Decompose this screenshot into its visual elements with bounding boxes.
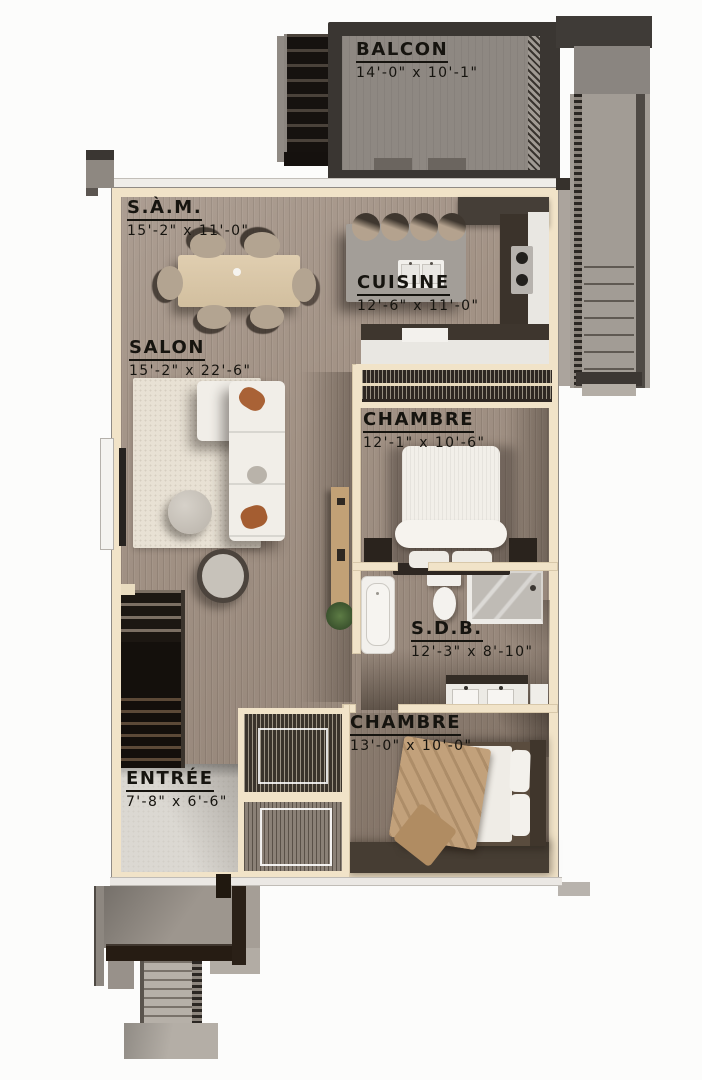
balcony-step-notch [428,158,466,170]
room-label-cuisine: CUISINE 12'-6" x 11'-0" [357,273,479,314]
dining-chair [197,305,231,329]
bottom-sill [110,877,562,886]
bar-stool [438,213,466,241]
entry-closet-upper [238,708,348,798]
swivel-chair [197,549,249,603]
dining-table [178,255,300,307]
stair-handrail [181,590,185,768]
side-stair-rail-right [636,94,645,388]
dining-chair [250,305,284,329]
left-window [100,438,114,550]
room-name: BALCON [356,40,448,63]
dishwasher [402,328,448,342]
bed2-pillow [510,794,530,836]
dining-chair [292,268,316,302]
cooktop-burner [516,252,528,264]
bottom-sill-step [558,882,590,896]
closet-door-outline [260,808,332,866]
porch-railing-horizontal [106,944,244,961]
room-name: SALON [129,338,205,361]
stairwell-upper-treads [121,590,184,642]
bed2-pillow [509,750,530,793]
exterior-stairs [140,961,192,1025]
room-dims: 15'-2" x 11'-0" [127,224,249,239]
shower [467,571,543,624]
dining-chair [157,266,183,300]
room-label-chambre2: CHAMBRE 13'-0" x 10'-0" [350,713,472,754]
bathtub-drain [376,592,379,595]
stair-newel-post [121,584,135,595]
room-label-entree: ENTRÉE 7'-8" x 6'-6" [126,769,228,810]
room-dims: 13'-0" x 10'-0" [350,739,472,754]
potted-plant [326,602,354,630]
roof-block-gray [574,46,650,96]
balcony-rail-hatch [528,36,540,170]
counter-bottom-white [361,340,549,364]
room-dims: 12'-3" x 8'-10" [411,645,533,660]
tv-panel [119,448,126,546]
porch-left-strip [94,886,104,986]
stairwell-lower-treads [121,698,184,768]
room-name: CHAMBRE [350,713,461,736]
entry-closet-lower [238,796,348,877]
front-door [216,874,231,898]
room-label-salon: SALON 15'-2" x 22'-6" [129,338,251,379]
room-dims: 12'-6" x 11'-0" [357,299,479,314]
room-name: S.D.B. [411,619,483,642]
wardrobe-clothes-row [362,370,552,383]
room-dims: 15'-2" x 22'-6" [129,364,251,379]
top-window-sill [112,178,558,188]
room-dims: 12'-1" x 10'-6" [363,436,485,451]
wardrobe-clothes-row [362,386,552,399]
room-label-balcon: BALCON 14'-0" x 10'-1" [356,40,478,81]
exterior-stairs-rail [192,961,202,1025]
room-name: CHAMBRE [363,410,474,433]
room-name: S.À.M. [127,198,202,221]
wall-junction-block [556,178,570,190]
balcony-step-notch [374,158,412,170]
console-decor [337,549,345,561]
bed1-duvet [402,446,500,528]
bar-stool [410,213,438,241]
room-dims: 7'-8" x 6'-6" [126,795,228,810]
porch-apron [108,961,134,989]
ottoman [168,490,212,534]
landing-shadow [124,1023,218,1059]
roof-block-dark [556,16,652,48]
room-label-sam: S.À.M. 15'-2" x 11'-0" [127,198,249,239]
console-decor [337,498,345,505]
wall-chambre1-sdb-left [352,562,398,571]
vanity-faucet [464,686,468,690]
closet-door-outline [258,728,328,784]
table-centerpiece [233,268,241,276]
vanity-faucet [499,686,503,690]
left-wall-step [86,188,98,196]
wardrobe-strip [356,364,558,408]
wall-chambre1-sdb-right [428,562,558,571]
left-wall-bumpout-cap [86,150,114,160]
side-stair-apron [582,384,636,396]
room-name: CUISINE [357,273,450,296]
room-label-chambre1: CHAMBRE 12'-1" x 10'-6" [363,410,485,451]
cooktop-burner [516,274,528,286]
sink-faucet [430,262,433,265]
porch-railing-vertical [232,877,246,965]
floor-plan-canvas: BALCON 14'-0" x 10'-1" S.À.M. 15'-2" x 1… [0,0,702,1080]
shower-glass-reflection [472,573,541,619]
vanity-backsplash [446,675,528,684]
side-stair-treads [584,266,634,370]
room-name: ENTRÉE [126,769,214,792]
bar-stool [381,213,409,241]
counter-bottom-dark [361,324,549,340]
toilet-bowl [433,587,456,620]
sink-faucet [409,262,412,265]
dining-chair [244,232,280,258]
shower-head [530,585,536,591]
room-dims: 14'-0" x 10'-1" [356,66,478,81]
bed2-headboard [530,740,546,846]
side-stair-rail-left [574,94,582,388]
bar-stool [352,213,380,241]
stair-landing [124,1023,218,1059]
throw-pillow [247,466,267,484]
room-label-sdb: S.D.B. 12'-3" x 8'-10" [411,619,533,660]
bed1-duvet-fold [395,520,507,548]
